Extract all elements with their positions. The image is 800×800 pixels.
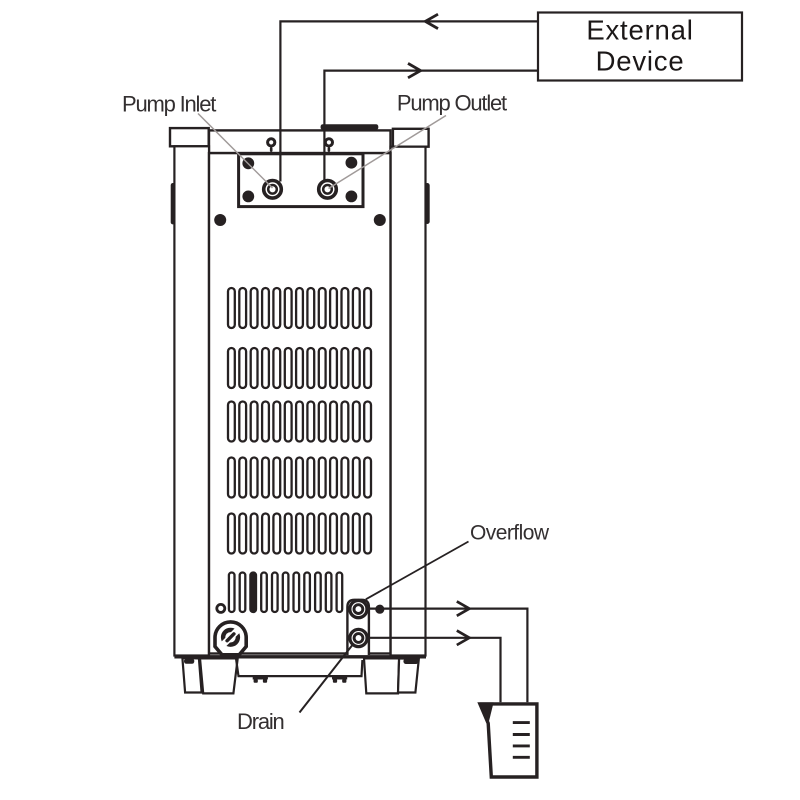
svg-text:External: External: [586, 15, 693, 46]
svg-text:Pump Inlet: Pump Inlet: [122, 91, 216, 116]
svg-text:Pump Outlet: Pump Outlet: [397, 90, 507, 115]
svg-text:Device: Device: [596, 46, 685, 77]
svg-text:Overflow: Overflow: [470, 522, 550, 545]
svg-text:Drain: Drain: [237, 709, 284, 734]
